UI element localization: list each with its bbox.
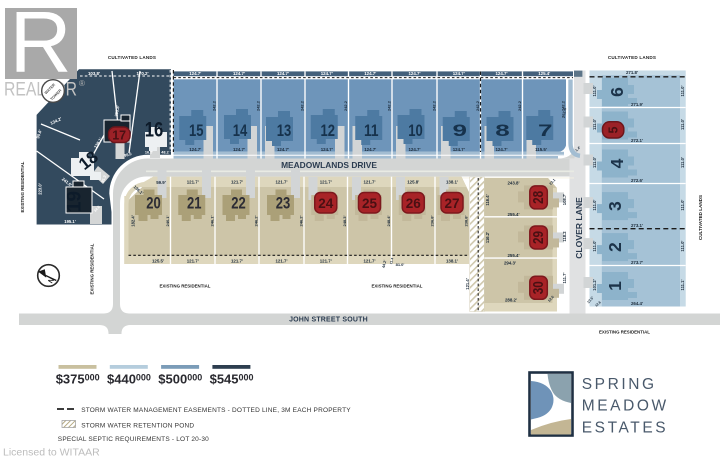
- svg-text:273.1': 273.1': [631, 223, 643, 228]
- svg-text:118.2: 118.2: [562, 231, 567, 242]
- svg-text:124.7': 124.7': [189, 147, 201, 152]
- svg-text:MEADOW: MEADOW: [582, 398, 669, 415]
- svg-text:111.0': 111.0': [680, 241, 685, 252]
- svg-text:124.7': 124.7': [233, 71, 245, 76]
- svg-text:121.7': 121.7': [231, 258, 243, 263]
- svg-text:124.7': 124.7': [364, 147, 376, 152]
- svg-text:271.9': 271.9': [631, 102, 643, 107]
- svg-text:14: 14: [233, 121, 248, 140]
- svg-text:242.2: 242.2: [212, 100, 217, 111]
- svg-text:28: 28: [530, 191, 547, 204]
- svg-text:ESTATES: ESTATES: [582, 419, 669, 436]
- svg-text:121.7': 121.7': [187, 179, 199, 184]
- svg-text:108.7': 108.7': [562, 194, 567, 205]
- svg-text:121.7': 121.7': [187, 258, 199, 263]
- svg-text:CULTIVATED LANDS: CULTIVATED LANDS: [608, 55, 656, 60]
- svg-text:5: 5: [606, 126, 620, 133]
- svg-text:111.0': 111.0': [592, 241, 597, 252]
- svg-text:10: 10: [408, 121, 423, 140]
- svg-text:255.4': 255.4': [507, 253, 519, 258]
- svg-text:2: 2: [605, 242, 625, 252]
- svg-text:124.7': 124.7': [364, 71, 376, 76]
- svg-text:125.8': 125.8': [407, 179, 419, 184]
- svg-text:29: 29: [530, 231, 547, 244]
- svg-text:111.0': 111.0': [592, 119, 597, 130]
- svg-text:242.2: 242.2: [387, 100, 392, 111]
- svg-text:121.7': 121.7': [363, 179, 375, 184]
- svg-text:195.1': 195.1': [64, 219, 75, 224]
- svg-text:16: 16: [145, 119, 164, 142]
- svg-text:111.1': 111.1': [680, 279, 685, 290]
- svg-text:273.7': 273.7': [631, 260, 643, 265]
- svg-text:138.1': 138.1': [446, 179, 458, 184]
- svg-text:121.7': 121.7': [231, 179, 243, 184]
- svg-text:170.2': 170.2': [136, 71, 148, 76]
- svg-text:111.7': 111.7': [562, 272, 567, 283]
- svg-text:17: 17: [112, 129, 126, 143]
- svg-text:22: 22: [231, 195, 246, 213]
- svg-text:EXISTING RESIDENTIAL: EXISTING RESIDENTIAL: [20, 161, 25, 212]
- svg-text:26: 26: [406, 196, 422, 211]
- svg-text:8: 8: [495, 121, 510, 140]
- svg-text:9: 9: [453, 121, 468, 140]
- svg-text:124.7': 124.7': [408, 71, 420, 76]
- svg-text:271.8': 271.8': [626, 70, 638, 75]
- svg-text:SPRING: SPRING: [582, 376, 657, 393]
- svg-text:6: 6: [607, 87, 627, 97]
- svg-text:STORM WATER MANAGEMENT EASEMEN: STORM WATER MANAGEMENT EASEMENTS - DOTTE…: [81, 407, 351, 414]
- svg-text:124.7': 124.7': [495, 147, 507, 152]
- svg-text:272.6': 272.6': [631, 178, 643, 183]
- svg-text:25: 25: [362, 196, 378, 211]
- svg-text:242.2: 242.2: [343, 100, 348, 111]
- svg-text:EXISTING RESIDENTIAL: EXISTING RESIDENTIAL: [160, 284, 211, 289]
- svg-text:SPECIAL SEPTIC REQUIREMENTS -: SPECIAL SEPTIC REQUIREMENTS - LOT 20-30: [58, 436, 209, 443]
- svg-text:REALTOR: REALTOR: [4, 80, 77, 101]
- svg-text:124.7': 124.7': [277, 71, 289, 76]
- svg-text:111.0': 111.0': [592, 157, 597, 168]
- svg-text:121.7': 121.7': [275, 258, 287, 263]
- svg-text:238.8': 238.8': [464, 215, 469, 226]
- svg-text:13: 13: [277, 121, 292, 140]
- svg-text:116.2': 116.2': [485, 232, 490, 243]
- svg-text:®: ®: [79, 79, 85, 88]
- svg-text:7: 7: [538, 121, 553, 140]
- svg-text:288.2': 288.2': [505, 297, 517, 302]
- svg-text:111.0': 111.0': [680, 200, 685, 211]
- svg-text:242.2: 242.2: [475, 100, 480, 111]
- svg-text:111.0': 111.0': [592, 200, 597, 211]
- svg-text:121.7': 121.7': [320, 179, 332, 184]
- svg-text:243.8': 243.8': [507, 180, 519, 185]
- svg-text:23: 23: [276, 195, 291, 213]
- svg-text:MEADOWLANDS DRIVE: MEADOWLANDS DRIVE: [281, 160, 377, 170]
- svg-text:124.7': 124.7': [453, 71, 465, 76]
- svg-text:248.3': 248.3': [342, 215, 347, 226]
- svg-text:27: 27: [444, 196, 459, 211]
- svg-text:240.1': 240.1': [165, 215, 170, 226]
- svg-text:124.7': 124.7': [321, 147, 333, 152]
- svg-text:R: R: [9, 0, 71, 91]
- svg-text:124.7': 124.7': [495, 71, 507, 76]
- svg-text:242.2: 242.2: [300, 100, 305, 111]
- svg-text:124.7': 124.7': [453, 147, 465, 152]
- svg-text:CULTIVATED LANDS: CULTIVATED LANDS: [698, 195, 703, 240]
- svg-text:48.2: 48.2: [161, 151, 168, 155]
- svg-text:124.7': 124.7': [321, 71, 333, 76]
- svg-text:111.0': 111.0': [680, 119, 685, 130]
- svg-text:CLOVER LANE: CLOVER LANE: [574, 197, 584, 259]
- svg-text:124.7': 124.7': [277, 147, 289, 152]
- svg-text:11: 11: [364, 121, 379, 140]
- svg-text:30: 30: [530, 281, 547, 294]
- svg-text:15: 15: [189, 121, 204, 140]
- svg-text:EXISTING RESIDENTIAL: EXISTING RESIDENTIAL: [372, 284, 423, 289]
- svg-text:248.4': 248.4': [386, 215, 391, 226]
- svg-text:111.0': 111.0': [680, 85, 685, 96]
- svg-text:81.0': 81.0': [396, 262, 405, 267]
- svg-text:4: 4: [607, 158, 627, 168]
- svg-text:21: 21: [187, 195, 202, 213]
- svg-text:20: 20: [146, 195, 161, 213]
- svg-text:116.4': 116.4': [485, 194, 490, 205]
- svg-text:138.1': 138.1': [446, 258, 458, 263]
- svg-text:EXISTING RESIDENTIAL: EXISTING RESIDENTIAL: [90, 243, 95, 294]
- svg-text:125.5': 125.5': [152, 258, 164, 263]
- svg-text:121.7': 121.7': [363, 258, 375, 263]
- svg-text:121.7': 121.7': [275, 179, 287, 184]
- svg-text:12: 12: [321, 121, 336, 140]
- svg-text:294.3': 294.3': [504, 260, 516, 265]
- svg-text:124.7': 124.7': [408, 147, 420, 152]
- svg-text:1: 1: [605, 281, 625, 291]
- svg-text:272.1': 272.1': [631, 138, 643, 143]
- svg-text:246.2': 246.2': [254, 215, 259, 226]
- svg-text:264.4': 264.4': [631, 301, 643, 306]
- svg-text:115.5': 115.5': [535, 147, 547, 152]
- svg-text:182.4': 182.4': [131, 215, 136, 226]
- svg-text:111.0': 111.0': [680, 157, 685, 168]
- svg-text:246.2': 246.2': [299, 215, 304, 226]
- svg-text:242.2: 242.2: [256, 100, 261, 111]
- svg-text:EXISTING RESIDENTIAL: EXISTING RESIDENTIAL: [599, 330, 650, 335]
- svg-text:CULTIVATED LANDS: CULTIVATED LANDS: [108, 55, 156, 60]
- svg-text:124.7': 124.7': [189, 71, 201, 76]
- svg-text:19: 19: [64, 191, 86, 212]
- svg-text:124.7': 124.7': [233, 147, 245, 152]
- svg-text:242.2: 242.2: [517, 100, 522, 111]
- svg-text:101.2': 101.2': [592, 279, 597, 290]
- svg-text:121.7': 121.7': [320, 258, 332, 263]
- svg-text:3: 3: [605, 201, 625, 211]
- svg-text:Licensed to WITAAR: Licensed to WITAAR: [3, 447, 100, 459]
- svg-text:242.2: 242.2: [432, 100, 437, 111]
- svg-text:125.4': 125.4': [538, 71, 550, 76]
- svg-text:111.0': 111.0': [592, 85, 597, 96]
- svg-text:24: 24: [318, 196, 334, 211]
- svg-text:246.1': 246.1': [210, 215, 215, 226]
- svg-text:16.5': 16.5': [145, 151, 153, 155]
- svg-text:59.9': 59.9': [156, 180, 166, 185]
- svg-text:STORM WATER RETENTION POND: STORM WATER RETENTION POND: [81, 422, 194, 429]
- svg-text:121.4': 121.4': [465, 278, 470, 289]
- svg-text:236.8': 236.8': [430, 215, 435, 226]
- svg-text:255.4': 255.4': [507, 212, 519, 217]
- svg-text:223.0': 223.0': [38, 183, 43, 194]
- svg-text:JOHN STREET SOUTH: JOHN STREET SOUTH: [289, 316, 368, 323]
- svg-text:103.8': 103.8': [88, 71, 100, 76]
